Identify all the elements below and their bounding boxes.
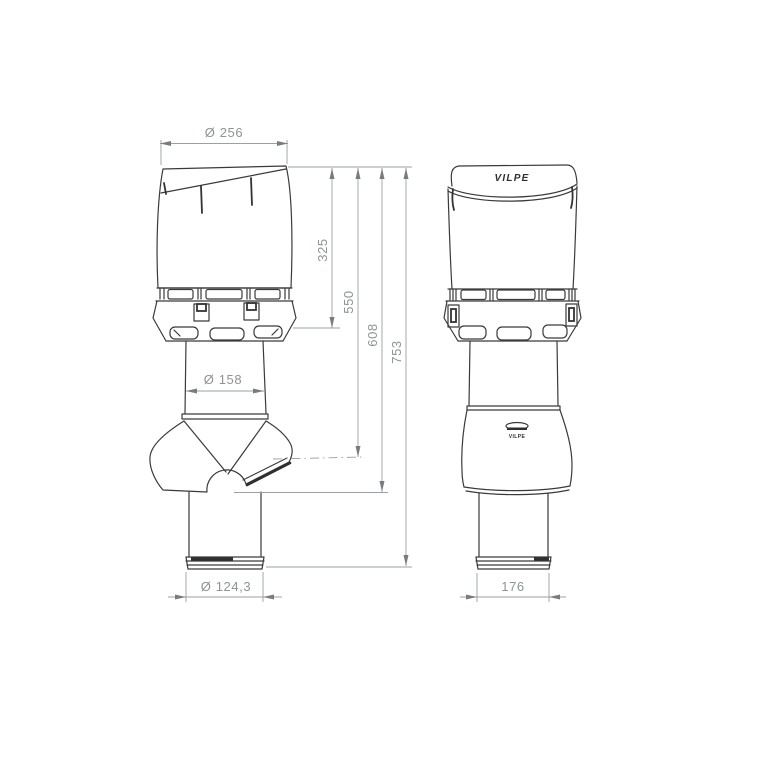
label-cap-height: 325 bbox=[315, 238, 330, 262]
arrow-top bbox=[404, 168, 409, 179]
label-total-height: 753 bbox=[389, 340, 404, 364]
label-front-pipe-width: 176 bbox=[501, 579, 525, 594]
side-cap-outline bbox=[157, 166, 292, 288]
label-height-to-skirt: 608 bbox=[365, 323, 380, 347]
technical-drawing-page: VILPE bbox=[0, 0, 770, 767]
front-louver-band bbox=[444, 289, 581, 341]
arrow-bottom bbox=[356, 446, 361, 457]
upper-vent-2 bbox=[206, 290, 242, 300]
front-cap-lid-arc-2 bbox=[448, 188, 577, 201]
side-joint-band bbox=[182, 414, 268, 419]
dimension-height-to-skirt: 608 bbox=[234, 168, 388, 493]
label-pipe-diameter: Ø 158 bbox=[204, 372, 242, 387]
clip-right-inner bbox=[247, 303, 256, 310]
dimension-cap-diameter: Ø 256 bbox=[160, 125, 288, 165]
arrow-top bbox=[380, 168, 385, 179]
wide-section-sides bbox=[462, 410, 572, 487]
cap-brand-logo: VILPE bbox=[495, 173, 530, 184]
arrow-top bbox=[356, 168, 361, 179]
front-lower-vent-3 bbox=[543, 325, 567, 338]
front-upper-vent-2 bbox=[497, 290, 535, 300]
dimension-total-height: 753 bbox=[266, 168, 412, 567]
arrow-right bbox=[277, 141, 288, 146]
side-view bbox=[150, 166, 296, 569]
front-clip-right-inner bbox=[569, 308, 574, 321]
front-wide-section: VILPE bbox=[462, 410, 572, 495]
arrow-bottom bbox=[380, 481, 385, 492]
label-cap-diameter: Ø 256 bbox=[205, 125, 243, 140]
wide-section-bottom-curves bbox=[464, 486, 570, 495]
arrow-bottom bbox=[404, 555, 409, 566]
pipe-logo-bar bbox=[507, 428, 527, 431]
dimension-front-pipe-width: 176 bbox=[460, 573, 566, 602]
front-lower-pipe bbox=[476, 493, 551, 569]
arrow-left bbox=[186, 389, 197, 394]
front-louver-ticks bbox=[450, 289, 575, 300]
front-joint-band bbox=[467, 406, 560, 410]
arrow-left bbox=[466, 595, 477, 600]
dimension-pipe-diameter: Ø 158 bbox=[186, 372, 264, 394]
front-upper-vent-1 bbox=[461, 290, 486, 300]
side-louver-band bbox=[153, 288, 296, 341]
front-upper-vent-3 bbox=[546, 290, 565, 300]
arrow-right bbox=[263, 595, 274, 600]
louver-ticks bbox=[160, 289, 289, 299]
flange-right-edge bbox=[283, 301, 296, 341]
dimension-cap-height: 325 bbox=[293, 168, 340, 328]
skirt-outline bbox=[150, 421, 292, 492]
side-cap-rib-right bbox=[251, 178, 252, 205]
front-cap-lid-arc-1 bbox=[448, 184, 577, 197]
skirt-crease-left bbox=[184, 421, 226, 472]
front-lower-pipe-ring-dark-segment bbox=[534, 558, 549, 561]
front-upper-pipe bbox=[469, 341, 558, 405]
front-cap-rib-left bbox=[452, 189, 454, 210]
skirt-crease-right bbox=[228, 421, 266, 474]
lower-vent-2 bbox=[210, 328, 244, 340]
side-cap-rib-left bbox=[201, 186, 202, 213]
flange-left-edge bbox=[153, 301, 166, 341]
side-cap-lid-slant bbox=[161, 169, 286, 193]
front-view: VILPE bbox=[444, 165, 581, 569]
arrow-top bbox=[330, 168, 335, 179]
upper-vent-1 bbox=[168, 290, 193, 300]
front-lower-vent-1 bbox=[459, 326, 486, 339]
lower-pipe-walls bbox=[189, 492, 261, 556]
upper-vent-3 bbox=[255, 290, 280, 300]
lower-vent-marks bbox=[174, 329, 278, 336]
arrow-left bbox=[160, 141, 171, 146]
dimension-bottom-pipe-diameter: Ø 124,3 bbox=[168, 572, 282, 602]
arrow-left bbox=[175, 595, 186, 600]
vent-pipe-technical-drawing: VILPE bbox=[0, 0, 770, 767]
label-bottom-pipe-diameter: Ø 124,3 bbox=[201, 579, 251, 594]
lower-vent-1 bbox=[170, 327, 198, 339]
side-lower-pipe bbox=[186, 492, 264, 569]
arrow-right bbox=[549, 595, 560, 600]
side-elbow-skirt bbox=[150, 421, 292, 492]
front-cap-rib-right bbox=[571, 187, 573, 208]
dimension-height-to-outlet: 550 bbox=[273, 168, 364, 459]
lower-pipe-ring-dark-segment bbox=[191, 558, 233, 561]
front-clip-left-inner bbox=[451, 309, 456, 322]
skirt-outlet-edge bbox=[247, 463, 290, 485]
clip-left-inner bbox=[197, 304, 206, 311]
pipe-brand-logo: VILPE bbox=[509, 434, 526, 440]
arrow-bottom bbox=[330, 317, 335, 328]
front-lower-pipe-walls bbox=[479, 493, 548, 556]
label-height-to-outlet: 550 bbox=[341, 290, 356, 314]
front-lower-vent-2 bbox=[497, 327, 531, 340]
lower-vent-3 bbox=[254, 326, 282, 338]
arrow-right bbox=[253, 389, 264, 394]
